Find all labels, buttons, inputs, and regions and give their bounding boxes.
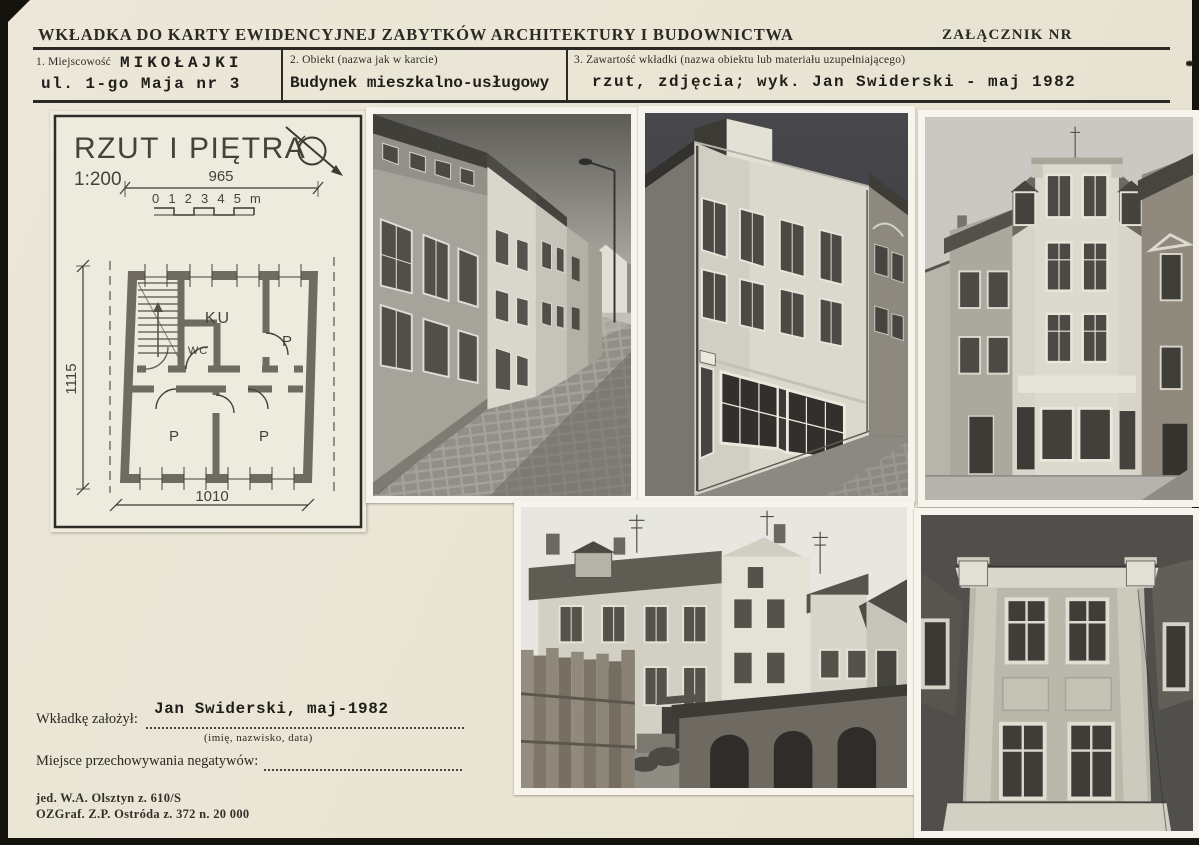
negatives-label: Miejsce przechowywania negatywów: <box>36 753 258 770</box>
field-locality-value: MIKOŁAJKI <box>120 54 242 72</box>
field-divider-2 <box>566 49 568 100</box>
ink-smudge <box>1186 60 1195 67</box>
plan-dim-bottom: 1010 <box>195 488 228 505</box>
photo-courtyard-image <box>521 507 907 788</box>
photo-street-view-image <box>373 114 631 496</box>
imprint-line-1: jed. W.A. Olsztyn z. 610/S <box>36 791 181 806</box>
plan-dim-left: 1115 <box>63 363 80 394</box>
floor-plan-drawing: RZUT I PIĘTRA 1:200 965 0 1 2 3 4 5 m <box>50 111 366 532</box>
attachment-number-label: ZAŁĄCZNIK NR <box>942 27 1073 44</box>
founder-hint: (imię, nazwisko, data) <box>204 732 313 744</box>
plan-scale-bar <box>154 208 254 215</box>
room-label-p-top: P <box>282 333 292 350</box>
scan-corner-shadow <box>0 0 30 30</box>
founder-label: Wkładkę założył: <box>36 711 138 728</box>
field-contents-label: 3. Zawartość wkładki (nazwa obiektu lub … <box>574 54 905 66</box>
photo-corner-building <box>638 106 915 503</box>
room-label-ku: KU <box>205 310 231 327</box>
photo-front-facade <box>918 110 1199 507</box>
photo-street-view <box>366 107 638 503</box>
header-rule-top <box>33 47 1170 50</box>
plan-scale-bar-labels: 0 1 2 3 4 5 m <box>152 191 261 206</box>
room-label-p-left: P <box>169 428 179 445</box>
header-rule-bottom <box>33 100 1170 103</box>
field-street-value: ul. 1-go Maja nr 3 <box>41 75 241 93</box>
room-label-wc: WC <box>188 345 208 357</box>
floor-plan-panel: RZUT I PIĘTRA 1:200 965 0 1 2 3 4 5 m <box>50 111 366 532</box>
photo-corner-building-image <box>645 113 908 496</box>
plan-scale: 1:200 <box>74 169 122 190</box>
field-contents-value: rzut, zdjęcia; wyk. Jan Swiderski - maj … <box>592 73 1076 91</box>
form-title: WKŁADKA DO KARTY EWIDENCYJNEJ ZABYTKÓW A… <box>38 25 794 45</box>
room-label-p-right: P <box>259 428 269 445</box>
field-object-value: Budynek mieszkalno-usługowy <box>290 74 549 92</box>
founder-value: Jan Swiderski, maj-1982 <box>154 700 389 718</box>
imprint-line-2: OZGraf. Z.P. Ostróda z. 372 n. 20 000 <box>36 807 249 822</box>
field-locality-label: 1. Miejscowość <box>36 56 111 68</box>
scanned-record-card: WKŁADKA DO KARTY EWIDENCYJNEJ ZABYTKÓW A… <box>0 0 1199 845</box>
photo-courtyard <box>514 500 914 795</box>
founder-dotted-line <box>146 727 464 729</box>
negatives-dotted-line <box>264 769 462 771</box>
wooden-fence <box>521 648 635 788</box>
photo-facade-closeup <box>914 508 1199 838</box>
photo-facade-closeup-image <box>921 515 1193 831</box>
plan-dim-top: 965 <box>208 168 233 185</box>
field-object-label: 2. Obiekt (nazwa jak w karcie) <box>290 54 438 66</box>
photo-front-facade-image <box>925 117 1193 500</box>
plan-title: RZUT I PIĘTRA <box>74 132 306 165</box>
field-divider-1 <box>281 49 283 100</box>
card-paper: WKŁADKA DO KARTY EWIDENCYJNEJ ZABYTKÓW A… <box>8 0 1192 838</box>
